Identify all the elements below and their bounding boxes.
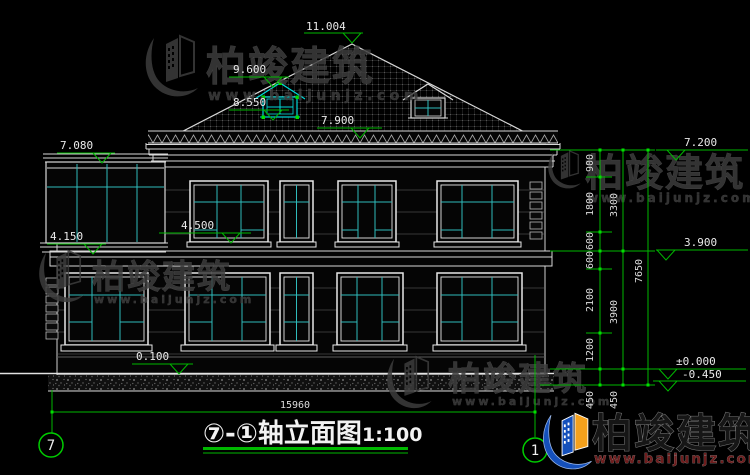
axis-number: 7	[47, 438, 55, 454]
window-2f-1	[187, 181, 271, 247]
axis-number: 1	[531, 443, 539, 459]
watermark-brand: 柏竣建筑	[585, 151, 745, 195]
elevation-label: ±0.000	[676, 355, 716, 368]
elevation-label: 4.500	[181, 219, 214, 232]
roof-tile-edge-band	[148, 131, 558, 143]
elevation-label: 8.550	[233, 96, 266, 109]
elevation-label: 7.900	[321, 114, 354, 127]
window-1f-3	[276, 273, 317, 351]
elevation-label: 11.004	[306, 20, 346, 33]
window-1f-4	[333, 273, 407, 351]
watermark-brand: 柏竣建筑	[92, 257, 232, 296]
dim-label: 450	[609, 391, 620, 409]
title-block: ⑦-①轴立面图 1:100	[203, 418, 422, 453]
window-1f-5	[433, 273, 526, 351]
elevation-drawing-canvas: 柏竣建筑 www.baijunjz.com 柏竣建筑 www.baijunjz.…	[0, 0, 750, 475]
watermark-site: www.baijunjz.com	[94, 293, 254, 306]
watermark-brand: 柏竣建筑	[206, 44, 374, 90]
elevation-label: 3.900	[684, 236, 717, 249]
dim-label: 7650	[634, 259, 645, 283]
dim-label: 1200	[585, 338, 596, 362]
watermark-site: www.baijunjz.com	[594, 451, 750, 467]
window-2f-3	[335, 181, 399, 247]
title-underline-thick	[203, 447, 408, 450]
dim-label: 450	[585, 391, 596, 409]
elevation-label: 9.600	[233, 63, 266, 76]
elevation-label: 7.080	[60, 139, 93, 152]
elevation-label: -0.450	[682, 368, 722, 381]
drawing-title: ⑦-①轴立面图	[203, 418, 362, 449]
watermark-brand: 柏竣建筑	[448, 359, 588, 398]
dim-label: 3300	[609, 193, 620, 217]
dim-label: 2100	[585, 288, 596, 312]
elevation-label: 4.150	[50, 230, 83, 243]
window-2f-2	[277, 181, 316, 247]
dim-label: 600	[585, 251, 596, 269]
dim-label: 3900	[609, 300, 620, 324]
dim-label: 600	[585, 232, 596, 250]
dim-label: 1800	[585, 192, 596, 216]
window-2f-4	[434, 181, 521, 247]
elevation-label: 7.200	[684, 136, 717, 149]
elevation-label: 0.100	[136, 350, 169, 363]
dim-label: 900	[585, 154, 596, 172]
drawing-scale: 1:100	[362, 424, 422, 446]
total-width-label: 15960	[280, 400, 310, 411]
